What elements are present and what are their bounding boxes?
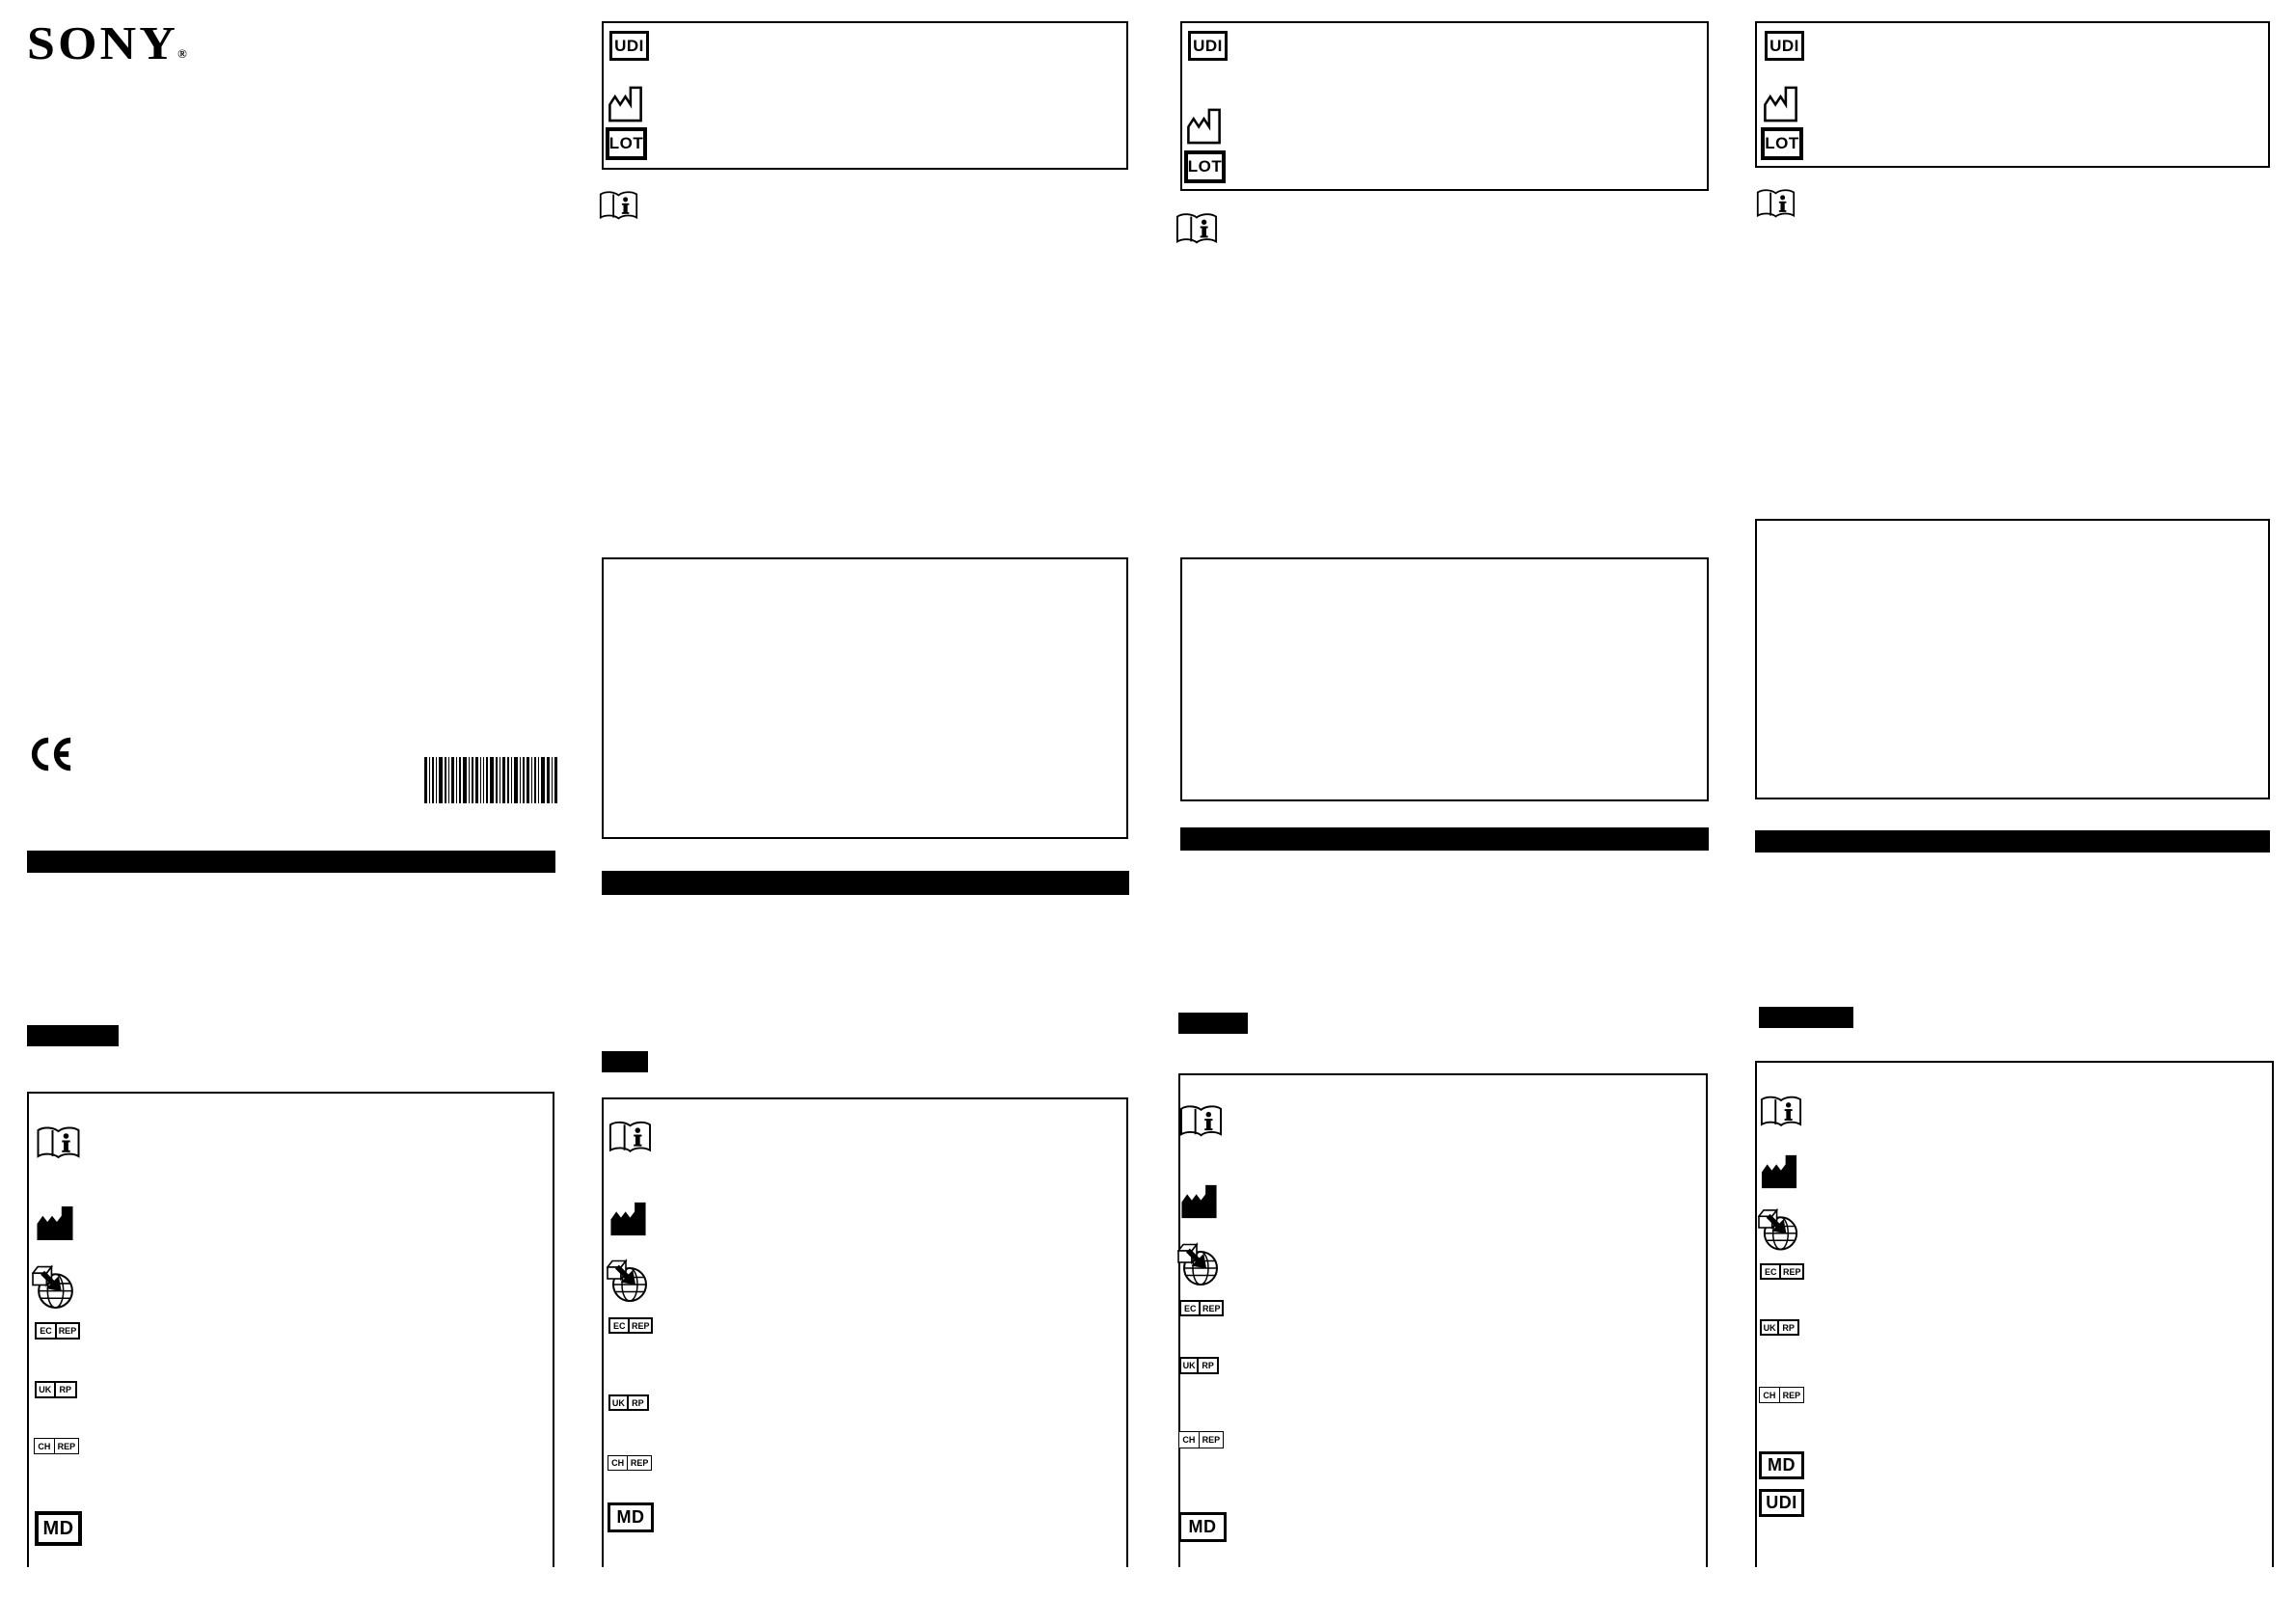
brand-wordmark: SONY (27, 26, 178, 60)
consult-ifu-icon (1175, 212, 1218, 247)
empty-content-box-panel2 (602, 557, 1128, 839)
manufacturer-icon (35, 1204, 75, 1242)
ec-rep-left: EC (1181, 1302, 1201, 1314)
importer-icon (607, 1256, 651, 1304)
section-header-bar (1759, 1007, 1853, 1028)
md-symbol: MD (35, 1511, 82, 1546)
symbols-box-panel4 (1755, 1061, 2274, 1567)
udi-symbol: UDI (1765, 31, 1804, 61)
uk-rp-right: RP (629, 1396, 647, 1409)
ch-rep-symbol: CH REP (34, 1438, 79, 1454)
section-header-bar (602, 1051, 648, 1072)
ec-rep-symbol: EC REP (608, 1317, 653, 1334)
ch-rep-symbol: CH REP (1178, 1431, 1224, 1448)
redacted-text-bar (1180, 827, 1709, 851)
top-label-box-panel2 (602, 21, 1128, 170)
uk-rp-right: RP (56, 1383, 75, 1396)
ec-rep-left: EC (1762, 1265, 1781, 1278)
ch-rep-right: REP (628, 1456, 651, 1470)
top-label-box-panel4 (1755, 21, 2270, 168)
redacted-text-bar (27, 851, 555, 873)
manufacturer-outline-icon (1763, 83, 1799, 122)
manufacturer-outline-icon (1186, 105, 1223, 145)
ch-rep-left: CH (35, 1439, 55, 1453)
ec-rep-symbol: EC REP (35, 1322, 80, 1340)
md-symbol: MD (608, 1502, 654, 1532)
section-header-bar (27, 1025, 119, 1046)
importer-icon (1758, 1205, 1801, 1252)
ce-mark-icon (29, 735, 73, 773)
section-header-bar (1178, 1013, 1248, 1034)
ch-rep-left: CH (1760, 1388, 1780, 1402)
ch-rep-symbol: CH REP (608, 1455, 652, 1471)
uk-rp-symbol: UK RP (1760, 1319, 1799, 1336)
uk-rp-left: UK (610, 1396, 629, 1409)
uk-rp-left: UK (1762, 1321, 1779, 1334)
consult-ifu-icon (608, 1121, 652, 1155)
ec-rep-right: REP (1781, 1265, 1802, 1278)
registered-trademark-icon: ® (177, 47, 187, 60)
uk-rp-symbol: UK RP (1179, 1357, 1219, 1374)
ch-rep-right: REP (55, 1439, 78, 1453)
ch-rep-right: REP (1200, 1432, 1223, 1448)
ec-rep-symbol: EC REP (1760, 1263, 1804, 1280)
lot-symbol: LOT (606, 127, 647, 160)
symbols-box-panel2 (602, 1097, 1128, 1567)
udi-symbol: UDI (1759, 1489, 1804, 1517)
redacted-text-bar (602, 871, 1129, 895)
md-symbol: MD (1178, 1512, 1227, 1542)
consult-ifu-icon (1179, 1104, 1223, 1140)
leaflet-page: SONY ® EC REP UK RP CH REP MD UDI LOT EC… (0, 0, 2296, 1624)
top-label-box-panel3 (1180, 21, 1709, 191)
redacted-text-bar (1755, 830, 2270, 853)
ec-rep-right: REP (630, 1319, 651, 1332)
importer-icon (1177, 1240, 1222, 1286)
lot-symbol: LOT (1184, 150, 1226, 183)
ch-rep-symbol: CH REP (1759, 1387, 1804, 1403)
consult-ifu-icon (1756, 187, 1796, 222)
consult-ifu-icon (36, 1126, 81, 1161)
barcode-icon (424, 757, 557, 803)
uk-rp-left: UK (1181, 1359, 1199, 1372)
symbols-box-panel1 (27, 1092, 554, 1567)
ch-rep-left: CH (1179, 1432, 1200, 1448)
uk-rp-symbol: UK RP (35, 1381, 77, 1398)
ec-rep-left: EC (610, 1319, 630, 1332)
ch-rep-left: CH (608, 1456, 628, 1470)
ec-rep-left: EC (37, 1324, 57, 1338)
sony-logo: SONY ® (27, 23, 187, 60)
ec-rep-right: REP (1201, 1302, 1222, 1314)
uk-rp-left: UK (37, 1383, 56, 1396)
uk-rp-right: RP (1779, 1321, 1797, 1334)
udi-symbol: UDI (1188, 31, 1228, 61)
symbols-box-panel3 (1178, 1073, 1708, 1567)
manufacturer-icon (608, 1201, 648, 1237)
ec-rep-right: REP (57, 1324, 78, 1338)
md-symbol: MD (1759, 1451, 1804, 1479)
manufacturer-icon (1179, 1183, 1219, 1220)
manufacturer-icon (1760, 1153, 1798, 1190)
importer-icon (32, 1262, 77, 1310)
ec-rep-symbol: EC REP (1179, 1300, 1224, 1316)
consult-ifu-icon (599, 189, 638, 224)
empty-content-box-panel3 (1180, 557, 1709, 801)
udi-symbol: UDI (609, 31, 649, 61)
lot-symbol: LOT (1761, 127, 1803, 160)
manufacturer-outline-icon (608, 83, 644, 122)
ch-rep-right: REP (1780, 1388, 1803, 1402)
consult-ifu-icon (1760, 1096, 1802, 1129)
empty-content-box-panel4 (1755, 519, 2270, 799)
uk-rp-right: RP (1199, 1359, 1217, 1372)
uk-rp-symbol: UK RP (608, 1394, 649, 1411)
